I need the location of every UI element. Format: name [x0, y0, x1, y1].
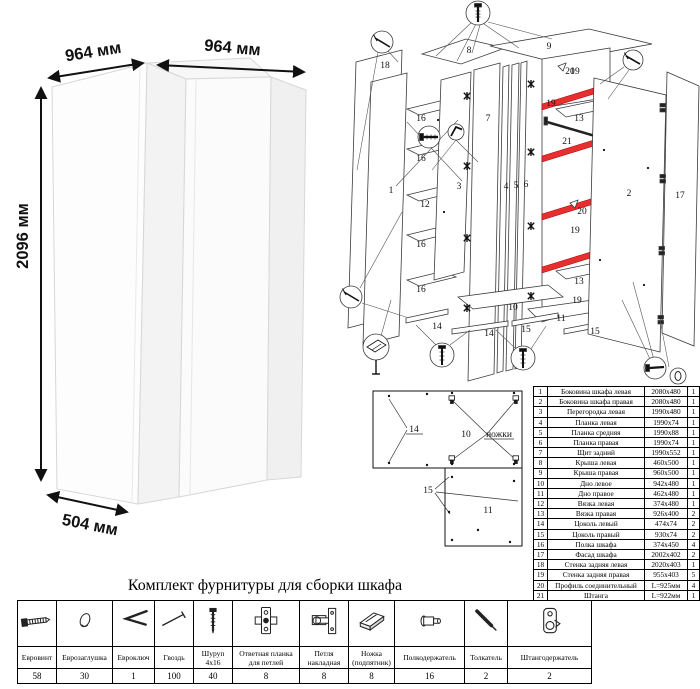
part-label-2: 2 — [627, 189, 632, 199]
hardware-item-name: Гвоздь — [155, 647, 194, 669]
legs-label: ножки — [486, 430, 512, 440]
parts-table-row: 15Цоколь правый930x742 — [534, 529, 700, 539]
parts-table-row: 7Щит задний1990x5521 — [534, 448, 700, 458]
parts-row-size: 474x74 — [645, 519, 688, 529]
hardware-item-qty: 16 — [395, 669, 465, 684]
parts-row-size: 2080x480 — [645, 397, 688, 407]
shelf-holder-icon — [412, 601, 448, 641]
parts-row-qty: 4 — [688, 539, 700, 549]
part-label-13: 13 — [574, 114, 584, 124]
exploded-diagram: 18 1 16 16 12 16 16 3 7 4 5 6 8 9 19 19 … — [340, 1, 699, 384]
part-label-14: 14 — [432, 322, 442, 332]
parts-row-qty: 1 — [688, 387, 700, 397]
hardware-item-name: Толкатель — [465, 647, 508, 669]
parts-table-row: 17Фасад шкафа2002x4022 — [534, 550, 700, 560]
parts-row-name: Стенка задняя левая — [548, 560, 645, 570]
parts-table-row: 1Боковина шкафа левая2080x4801 — [534, 387, 700, 397]
hardware-item-qty: 8 — [300, 669, 349, 684]
hardware-icon-cell — [233, 601, 300, 647]
parts-table-row: 12Вязка левая374x4801 — [534, 499, 700, 509]
pusher-icon — [468, 601, 504, 641]
parts-row-name: Крыша правая — [548, 468, 645, 478]
roof-8 — [422, 39, 505, 64]
parts-table-row: 5Планка средняя1990x881 — [534, 427, 700, 437]
part-label-12: 12 — [420, 200, 430, 210]
parts-row-name: Полка шкафа — [548, 539, 645, 549]
europlug-icon — [67, 601, 103, 641]
parts-row-name: Цоколь правый — [548, 529, 645, 539]
parts-row-size: 930x74 — [645, 529, 688, 539]
dim-label-width-right: 964 мм — [203, 37, 261, 60]
screw-icon — [195, 601, 231, 641]
parts-table-row: 9Крыша правая960x5001 — [534, 468, 700, 478]
part-label-16: 16 — [416, 285, 426, 295]
part-label-21: 21 — [562, 137, 572, 147]
parts-row-size: 1990x74 — [645, 417, 688, 427]
hardware-item-name: Шуруп 4x16 — [194, 647, 233, 669]
hardware-icon-cell — [300, 601, 349, 647]
parts-row-number: 1 — [534, 387, 548, 397]
eurokey-icon — [116, 601, 152, 641]
nail-icon — [156, 601, 192, 641]
parts-row-name: Вязка правая — [548, 509, 645, 519]
parts-row-size: 960x500 — [645, 468, 688, 478]
parts-row-qty: 1 — [688, 468, 700, 478]
part-label-11: 11 — [556, 314, 565, 324]
parts-row-size: L=925мм — [645, 580, 688, 590]
plinth-14 — [406, 309, 448, 323]
parts-row-name: Дно правое — [548, 488, 645, 498]
bottom-view-label-14: 14 — [409, 425, 419, 435]
parts-row-size: 2020x403 — [645, 560, 688, 570]
hardware-qty-row: 58301100408881622 — [18, 669, 592, 684]
parts-row-number: 12 — [534, 499, 548, 509]
parts-row-qty: 1 — [688, 448, 700, 458]
parts-row-number: 5 — [534, 427, 548, 437]
parts-row-qty: 2 — [688, 519, 700, 529]
hardware-item-name: Полкодержатель — [395, 647, 465, 669]
parts-row-size: 926x400 — [645, 509, 688, 519]
hardware-item-qty: 100 — [155, 669, 194, 684]
hardware-names-row: ЕвровинтЕврозаглушкаЕвроключГвоздьШуруп … — [18, 647, 592, 669]
parts-row-number: 19 — [534, 570, 548, 580]
part-label-8: 8 — [467, 46, 472, 56]
parts-row-qty: 1 — [688, 499, 700, 509]
dim-label-height: 2096 мм — [14, 203, 32, 269]
parts-row-name: Боковина шкафа правая — [548, 397, 645, 407]
part-label-4: 4 — [504, 182, 509, 192]
hardware-item-qty: 40 — [194, 669, 233, 684]
foot-icon — [354, 601, 390, 641]
hardware-icon-cell — [155, 601, 194, 647]
parts-row-number: 6 — [534, 437, 548, 447]
hardware-item-qty: 1 — [113, 669, 155, 684]
hardware-item-name: Петля накладная — [300, 647, 349, 669]
hardware-icon-cell — [349, 601, 395, 647]
parts-row-name: Стенка задняя правая — [548, 570, 645, 580]
part-label-19: 19 — [570, 226, 580, 236]
part-label-9: 9 — [547, 42, 552, 52]
hardware-icon-cell — [194, 601, 233, 647]
hardware-item-name: Ножка (подпятник) — [349, 647, 395, 669]
hardware-kit-title: Комплект фурнитуры для сборки шкафа — [105, 577, 425, 595]
rod-holder-icon — [532, 601, 568, 641]
parts-row-name: Штанга — [548, 590, 645, 600]
parts-row-name: Крыша левая — [548, 458, 645, 468]
parts-row-name: Перегородка левая — [548, 407, 645, 417]
hardware-item-qty: 30 — [57, 669, 113, 684]
parts-row-size: 955x403 — [645, 570, 688, 580]
parts-row-number: 16 — [534, 539, 548, 549]
part-label-16: 16 — [416, 154, 426, 164]
eurovint-icon — [19, 601, 55, 641]
parts-table-row: 11Дно правое462x4801 — [534, 488, 700, 498]
bottom-view-label-15: 15 — [423, 486, 433, 496]
parts-table-row: 16Полка шкафа374x4504 — [534, 539, 700, 549]
wardrobe-right-side — [267, 77, 306, 480]
part-label-3: 3 — [457, 182, 462, 192]
parts-row-number: 21 — [534, 590, 548, 600]
part-label-17: 17 — [675, 191, 685, 201]
hardware-icon-cell — [57, 601, 113, 647]
parts-row-qty: 5 — [688, 570, 700, 580]
wardrobe-corner-recess — [138, 63, 186, 504]
hardware-icon-cell — [113, 601, 155, 647]
bottom-view-diagram: 14 10 ножки 15 11 — [373, 391, 522, 546]
part-label-15: 15 — [521, 325, 531, 335]
parts-row-size: 1990x480 — [645, 407, 688, 417]
parts-row-name: Боковина шкафа левая — [548, 387, 645, 397]
parts-row-size: 374x450 — [645, 539, 688, 549]
parts-row-name: Планка левая — [548, 417, 645, 427]
parts-row-name: Щит задний — [548, 448, 645, 458]
parts-row-number: 14 — [534, 519, 548, 529]
panel-17-facade — [662, 72, 699, 346]
hardware-item-qty: 58 — [18, 669, 57, 684]
parts-row-qty: 1 — [688, 458, 700, 468]
furniture-assembly-sheet: 964 мм 964 мм 2096 мм 504 мм — [0, 0, 700, 689]
parts-row-name: Дно левое — [548, 478, 645, 488]
hardware-icon-cell — [508, 601, 592, 647]
hardware-item-qty: 8 — [233, 669, 300, 684]
parts-row-qty: 1 — [688, 417, 700, 427]
parts-list-body: 1Боковина шкафа левая2080x48012Боковина … — [534, 387, 700, 601]
parts-row-number: 7 — [534, 448, 548, 458]
parts-table-row: 14Цоколь левый474x742 — [534, 519, 700, 529]
parts-table-row: 10Дно левое942x4801 — [534, 478, 700, 488]
part-label-10: 10 — [508, 303, 518, 313]
part-label-6: 6 — [524, 180, 529, 190]
part-label-5: 5 — [514, 181, 519, 191]
hardware-icon-cell — [18, 601, 57, 647]
part-label-15: 15 — [590, 327, 600, 337]
parts-table-row: 13Вязка правая926x4002 — [534, 509, 700, 519]
parts-row-number: 17 — [534, 550, 548, 560]
parts-row-qty: 1 — [688, 397, 700, 407]
dim-label-depth: 504 мм — [60, 511, 119, 539]
bottom-view-label-11: 11 — [483, 506, 492, 516]
part-label-20: 20 — [577, 207, 587, 217]
parts-row-number: 18 — [534, 560, 548, 570]
hardware-item-name: Евровинт — [18, 647, 57, 669]
hinge-plate-icon — [248, 601, 284, 641]
part-label-1: 1 — [389, 186, 394, 196]
part-label-18: 18 — [380, 61, 390, 71]
parts-row-size: 462x480 — [645, 488, 688, 498]
parts-row-number: 4 — [534, 417, 548, 427]
hardware-item-name: Ответная планка для петлей — [233, 647, 300, 669]
parts-row-size: 942x480 — [645, 478, 688, 488]
part-label-14: 14 — [484, 329, 494, 339]
parts-row-number: 8 — [534, 458, 548, 468]
parts-row-name: Планка правая — [548, 437, 645, 447]
parts-row-size: 374x480 — [645, 499, 688, 509]
part-label-16: 16 — [416, 114, 426, 124]
wardrobe-3d — [52, 58, 306, 504]
hardware-item-qty: 8 — [349, 669, 395, 684]
parts-row-qty: 1 — [688, 478, 700, 488]
parts-list-table: 1Боковина шкафа левая2080x48012Боковина … — [533, 386, 700, 601]
part-label-19: 19 — [572, 296, 582, 306]
parts-table-row: 19Стенка задняя правая955x4035 — [534, 570, 700, 580]
parts-row-qty: 2 — [688, 509, 700, 519]
parts-row-size: 1990x88 — [645, 427, 688, 437]
part-label-7: 7 — [486, 114, 491, 124]
parts-row-name: Цоколь левый — [548, 519, 645, 529]
parts-row-number: 11 — [534, 488, 548, 498]
parts-row-qty: 1 — [688, 407, 700, 417]
parts-row-qty: 1 — [688, 427, 700, 437]
hardware-icon-cell — [395, 601, 465, 647]
parts-table-row: 20Профиль соединительныйL=925мм4 — [534, 580, 700, 590]
hardware-icon-cell — [465, 601, 508, 647]
parts-row-qty: 2 — [688, 550, 700, 560]
bottom-view-label-10: 10 — [461, 430, 471, 440]
hardware-item-name: Штангодержатель — [508, 647, 592, 669]
hardware-item-name: Евроключ — [113, 647, 155, 669]
part-label-16: 16 — [416, 240, 426, 250]
parts-table-row: 4Планка левая1990x741 — [534, 417, 700, 427]
parts-row-name: Профиль соединительный — [548, 580, 645, 590]
hardware-item-name: Еврозаглушка — [57, 647, 113, 669]
parts-table-row: 8Крыша левая460x5001 — [534, 458, 700, 468]
part-label-20: 20 — [565, 67, 575, 77]
dim-label-width-left: 964 мм — [64, 39, 123, 66]
hardware-item-qty: 2 — [508, 669, 592, 684]
parts-row-size: 1990x552 — [645, 448, 688, 458]
parts-row-number: 3 — [534, 407, 548, 417]
parts-row-qty: 1 — [688, 560, 700, 570]
parts-row-size: 2080x480 — [645, 387, 688, 397]
parts-table-row: 6Планка правая1990x741 — [534, 437, 700, 447]
hardware-kit-table: ЕвровинтЕврозаглушкаЕвроключГвоздьШуруп … — [17, 600, 592, 684]
parts-row-size: 460x500 — [645, 458, 688, 468]
parts-row-number: 20 — [534, 580, 548, 590]
parts-table-row: 21ШтангаL=922мм1 — [534, 590, 700, 600]
parts-row-name: Фасад шкафа — [548, 550, 645, 560]
parts-row-number: 15 — [534, 529, 548, 539]
parts-row-qty: 2 — [688, 529, 700, 539]
parts-row-name: Вязка левая — [548, 499, 645, 509]
parts-table-row: 3Перегородка левая1990x4801 — [534, 407, 700, 417]
parts-row-size: 2002x402 — [645, 550, 688, 560]
parts-row-number: 2 — [534, 397, 548, 407]
parts-row-qty: 1 — [688, 437, 700, 447]
part-label-13: 13 — [574, 277, 584, 287]
parts-table-row: 2Боковина шкафа правая2080x4801 — [534, 397, 700, 407]
hardware-icons-row — [18, 601, 592, 647]
part-label-19: 19 — [546, 99, 556, 109]
parts-row-number: 10 — [534, 478, 548, 488]
hinge-icon — [306, 601, 342, 641]
parts-row-name: Планка средняя — [548, 427, 645, 437]
parts-table-row: 18Стенка задняя левая2020x4031 — [534, 560, 700, 570]
parts-row-qty: 1 — [688, 488, 700, 498]
parts-row-qty: 4 — [688, 580, 700, 590]
parts-row-qty: 1 — [688, 590, 700, 600]
parts-row-number: 9 — [534, 468, 548, 478]
parts-row-size: 1990x74 — [645, 437, 688, 447]
parts-row-size: L=922мм — [645, 590, 688, 600]
hardware-item-qty: 2 — [465, 669, 508, 684]
parts-row-number: 13 — [534, 509, 548, 519]
